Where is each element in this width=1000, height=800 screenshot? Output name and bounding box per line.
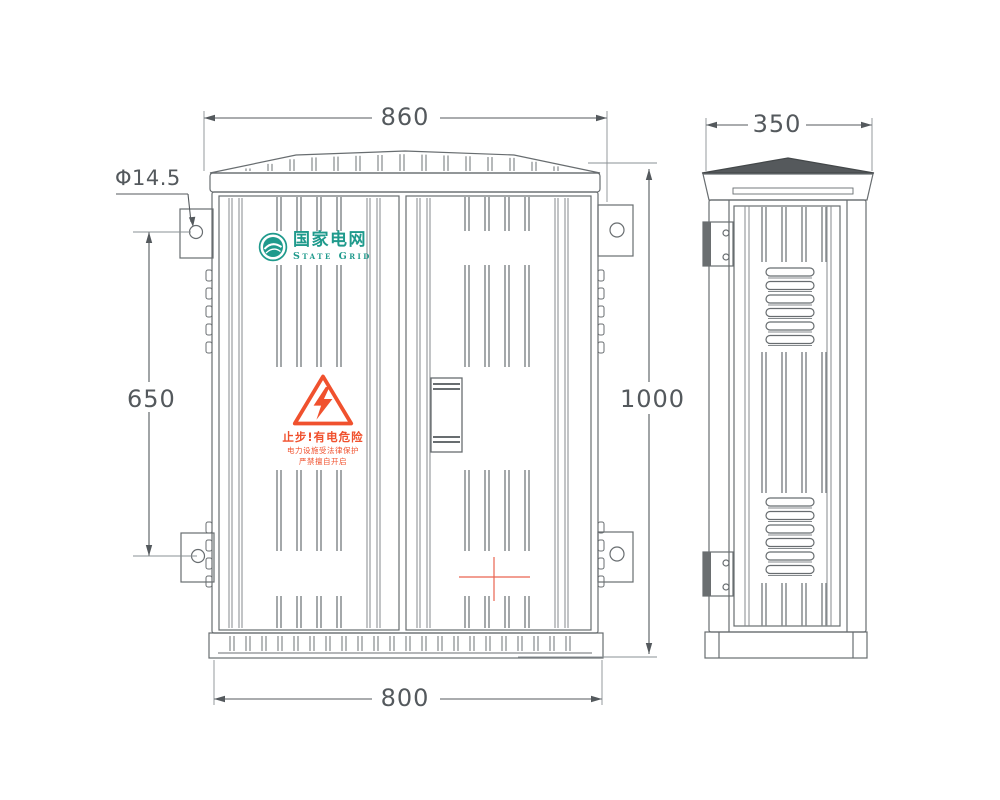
dimension-hole-diameter-leader (116, 194, 195, 227)
center-crosshair-mark (459, 557, 530, 601)
dim-label-base-width: 800 (374, 685, 436, 711)
side-base (705, 632, 867, 658)
front-base (209, 633, 603, 658)
logo-chinese-text: 国家电网 (293, 232, 372, 250)
warning-line3: 严禁擅自开启 (277, 456, 369, 467)
base-vent-slits (230, 636, 570, 651)
right-door-ribs (417, 197, 568, 628)
hinge-knuckle-bumps (206, 270, 604, 587)
state-grid-emblem-icon (258, 232, 288, 262)
front-view (209, 151, 603, 658)
hazard-triangle-icon (291, 372, 355, 428)
dim-label-height: 1000 (620, 386, 678, 412)
warning-line2: 电力设施受法律保护 (277, 445, 369, 456)
dim-label-roof-width: 860 (372, 104, 438, 130)
electric-hazard-warning-sticker: 止步!有电危险 电力设施受法律保护 严禁擅自开启 (277, 372, 369, 467)
dim-label-hole-diameter: Φ14.5 (115, 167, 193, 190)
side-panel-ribs (762, 207, 826, 626)
door-handle (431, 378, 462, 452)
side-louvers (766, 268, 814, 576)
side-view (702, 158, 874, 658)
dim-label-depth: 350 (747, 111, 807, 137)
logo-english-text: State Grid (293, 251, 372, 262)
logo-text-block: 国家电网 State Grid (293, 232, 372, 262)
warning-line1: 止步!有电危险 (277, 429, 369, 445)
dim-label-mount-hole-spacing: 650 (127, 386, 171, 412)
technical-drawing-canvas: 860 350 800 650 1000 Φ14.5 国家电网 State Gr… (0, 0, 1000, 800)
state-grid-logo: 国家电网 State Grid (258, 232, 372, 262)
